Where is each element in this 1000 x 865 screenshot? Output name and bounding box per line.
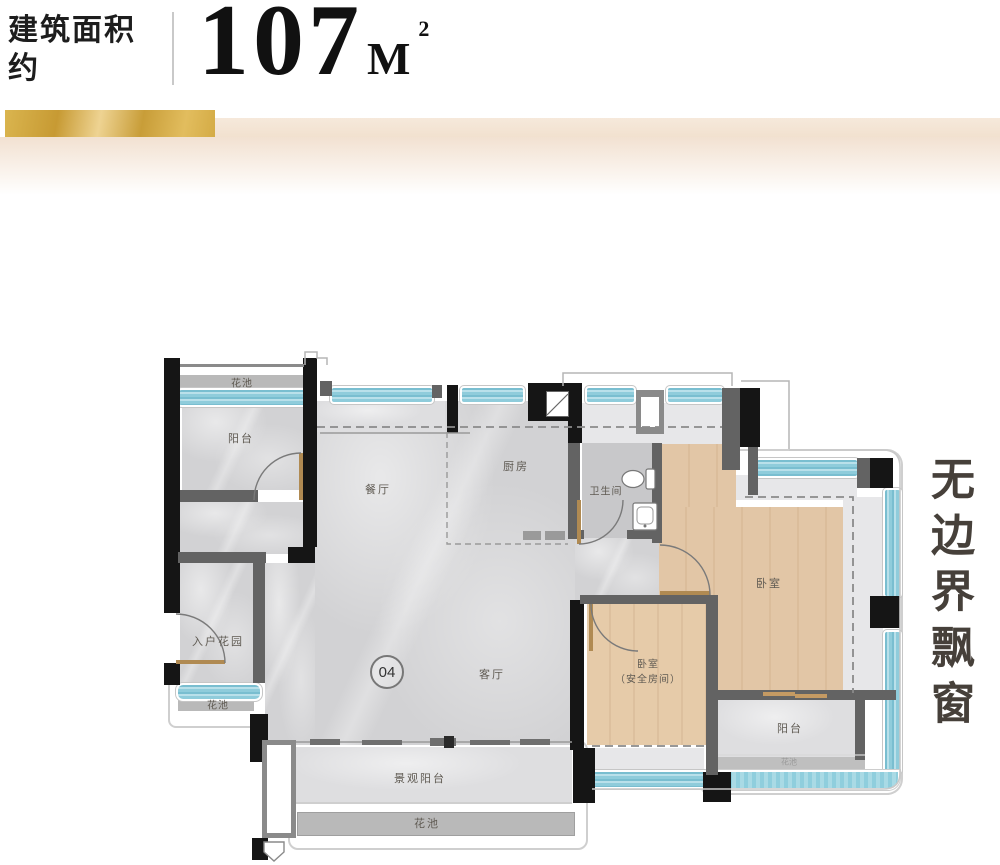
room-label-bedroom-safe-1: 卧室 [637,656,659,671]
room-label-flower-bed-left: 花池 [207,697,229,712]
room-label-dining: 餐厅 [365,481,391,497]
plan-linework [0,0,1000,865]
room-label-kitchen: 厨房 [503,458,529,474]
dashed-kitchen [447,432,568,544]
sink-icon [633,503,657,530]
kitchen-cabinets [523,531,565,540]
unit-number-badge: 04 [370,655,404,689]
room-label-bathroom: 卫生间 [590,483,623,498]
room-label-entry-garden: 入户花园 [192,633,244,649]
door-arc-master [660,545,710,595]
door-arc-safe [591,604,638,651]
room-label-flower-bed-right: 花池 [781,757,797,768]
roofline-top-right [741,381,789,449]
kitchen-flue-diagonal [547,394,568,415]
room-label-balcony-top-left: 阳台 [228,430,254,446]
roofline-tl [305,352,327,365]
room-label-bedroom-safe-2: （安全房间） [615,671,681,686]
room-label-flower-bed-bottom: 花池 [414,815,440,831]
floor-plan: 花池 阳台 餐厅 厨房 卫生间 入户花园 花池 客厅 卧室 卧室 （安全房间） … [0,0,1000,865]
room-label-flower-bed-top: 花池 [231,375,253,390]
shaft-notch [264,842,284,861]
toilet-icon [622,469,655,489]
roofline-top-mid [563,373,732,386]
dashed-bay-master [745,497,853,693]
room-label-scenic-balcony: 景观阳台 [394,770,446,786]
room-label-bedroom-master: 卧室 [756,575,782,591]
room-label-balcony-bottom-right: 阳台 [777,720,803,736]
room-label-living: 客厅 [479,666,505,682]
door-arc-balcony-tl [254,453,301,500]
door-arc-bathroom [579,500,623,544]
